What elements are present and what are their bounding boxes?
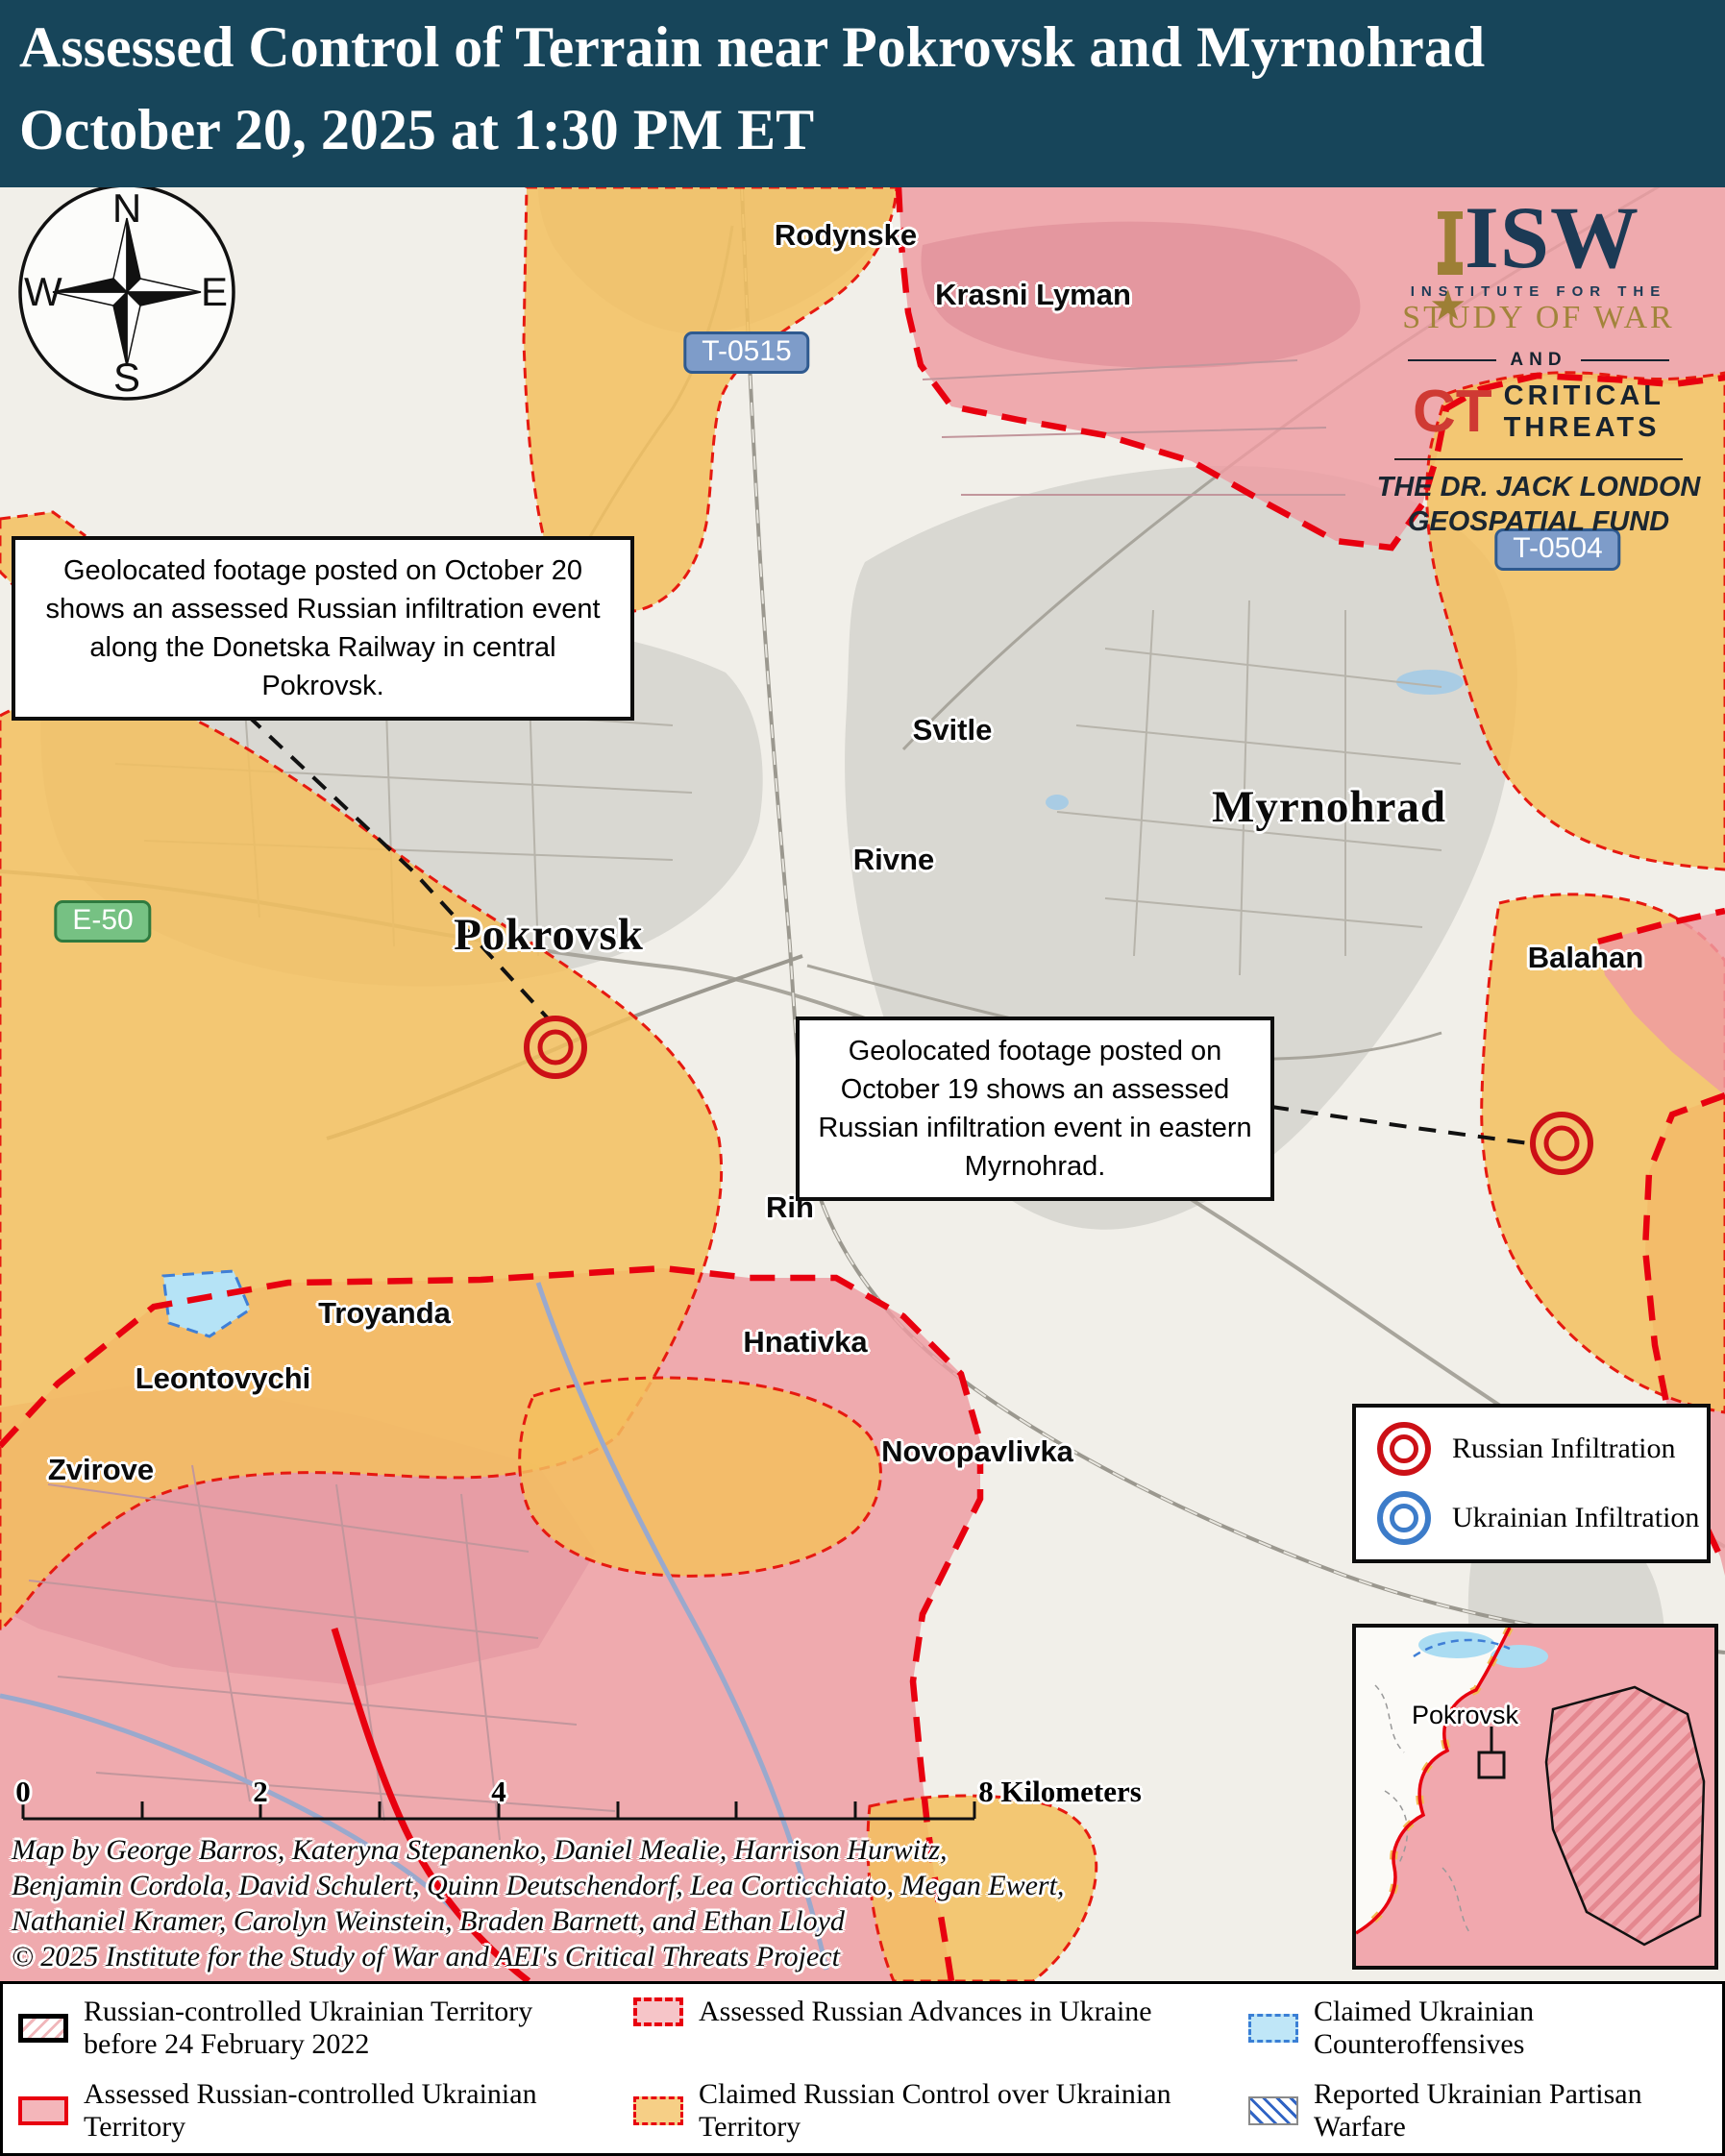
legend-label: Claimed Russian Control over Ukrainian T… — [699, 2078, 1171, 2144]
legend-item-claimed: Claimed Russian Control over Ukrainian T… — [633, 2078, 1171, 2144]
credits-line-4: © 2025 Institute for the Study of War an… — [12, 1939, 1064, 1974]
town-label-balahan: Balahan — [1528, 941, 1644, 975]
fund-line1: THE DR. JACK LONDON — [1366, 470, 1712, 504]
annotation-pokrovsk-infiltration: Geolocated footage posted on October 20 … — [12, 536, 634, 721]
legend-swatch-controlled — [18, 2096, 68, 2125]
town-label-pokrovsk: Pokrovsk — [454, 909, 644, 961]
map-credits: Map by George Barros, Kateryna Stepanenk… — [12, 1832, 1064, 1974]
isw-study-of-war-line: STUDY OF WAR — [1366, 300, 1712, 336]
and-label: AND — [1510, 350, 1566, 371]
annotation-myrnohrad-infiltration: Geolocated footage posted on October 19 … — [796, 1017, 1274, 1201]
legend-label: Reported Ukrainian Partisan Warfare — [1314, 2078, 1681, 2144]
legend-item-pre2022: Russian-controlled Ukrainian Territory b… — [18, 1996, 556, 2061]
town-label-novopavlivka: Novopavlivka — [881, 1434, 1073, 1469]
legend-label: Russian-controlled Ukrainian Territory b… — [84, 1996, 556, 2061]
scale-label-2: 2 — [253, 1775, 268, 1809]
legend-item-advances: Assessed Russian Advances in Ukraine — [633, 1996, 1171, 2028]
legend-swatch-advances — [633, 1997, 683, 2026]
inset-graphics — [1356, 1628, 1714, 1966]
town-label-zvirove: Zvirove — [48, 1453, 154, 1487]
credits-line-3: Nathaniel Kramer, Carolyn Weinstein, Bra… — [12, 1903, 1064, 1939]
town-label-hnativka: Hnativka — [743, 1325, 867, 1360]
infiltration-legend-item: Ukrainian Infiltration — [1377, 1491, 1707, 1545]
map-canvas: N E S W ISW ★ INSTITUTE FOR THE STUDY OF… — [0, 187, 1725, 1981]
legend-swatch-claimed — [633, 2096, 683, 2125]
ct-monogram: CT — [1413, 385, 1492, 439]
fund-line2: GEOSPATIAL FUND — [1366, 504, 1712, 539]
credits-line-1: Map by George Barros, Kateryna Stepanenk… — [12, 1832, 1064, 1868]
town-label-rivne: Rivne — [853, 843, 934, 877]
legend-label: Claimed Ukrainian Counteroffensives — [1314, 1996, 1681, 2061]
and-separator: AND — [1366, 350, 1712, 371]
compass-north-label: N — [112, 187, 141, 232]
compass-south-label: S — [113, 355, 140, 401]
fund-divider — [1394, 458, 1683, 460]
page-title: Assessed Control of Terrain near Pokrovs… — [0, 0, 1725, 88]
ct-wordmark: CRITICAL THREATS — [1504, 380, 1664, 445]
town-label-rodynske: Rodynske — [775, 218, 917, 253]
compass-rose: N E S W — [16, 187, 237, 403]
legend-item-counteroffensives: Claimed Ukrainian Counteroffensives — [1248, 1996, 1681, 2061]
russian-infiltration-icon — [1377, 1422, 1431, 1476]
ct-line1: CRITICAL — [1504, 380, 1664, 412]
isw-map-page: Assessed Control of Terrain near Pokrovs… — [0, 0, 1725, 2156]
isw-logo: ISW ★ — [1366, 193, 1712, 282]
page-subtitle-date: October 20, 2025 at 1:30 PM ET — [0, 88, 1725, 171]
map-legend: Russian-controlled Ukrainian Territory b… — [0, 1981, 1725, 2156]
scale-label-8-kilometers: 8 Kilometers — [978, 1775, 1142, 1809]
branding-block: ISW ★ INSTITUTE FOR THE STUDY OF WAR AND… — [1366, 193, 1712, 539]
road-shield-e-50: E-50 — [54, 900, 151, 943]
credits-line-2: Benjamin Cordola, David Schulert, Quinn … — [12, 1868, 1064, 1903]
locator-inset-map: Pokrovsk — [1352, 1624, 1718, 1970]
ukrainian-infiltration-icon — [1377, 1491, 1431, 1545]
legend-label: Assessed Russian-controlled Ukrainian Te… — [84, 2078, 556, 2144]
legend-label: Assessed Russian Advances in Ukraine — [699, 1996, 1152, 2028]
road-shield-t-0515: T-0515 — [683, 331, 809, 374]
ct-line2: THREATS — [1504, 412, 1664, 444]
inset-pokrovsk-label: Pokrovsk — [1412, 1701, 1518, 1730]
critical-threats-logo: CT CRITICAL THREATS — [1366, 380, 1712, 445]
legend-item-controlled: Assessed Russian-controlled Ukrainian Te… — [18, 2078, 556, 2144]
scale-label-4: 4 — [491, 1775, 506, 1809]
town-label-troyanda: Troyanda — [318, 1296, 451, 1331]
legend-swatch-partisan — [1248, 2096, 1298, 2125]
geospatial-fund-label: THE DR. JACK LONDON GEOSPATIAL FUND — [1366, 470, 1712, 540]
town-label-svitle: Svitle — [913, 713, 993, 747]
infiltration-legend-item: Russian Infiltration — [1377, 1422, 1707, 1476]
header-bar: Assessed Control of Terrain near Pokrovs… — [0, 0, 1725, 187]
town-label-krasni-lyman: Krasni Lyman — [935, 278, 1131, 312]
legend-swatch-pre2022 — [18, 2014, 68, 2043]
isw-star-icon: ★ — [1429, 285, 1466, 328]
compass-east-label: E — [201, 269, 228, 315]
legend-swatch-counteroffensives — [1248, 2014, 1298, 2043]
legend-item-partisan: Reported Ukrainian Partisan Warfare — [1248, 2078, 1681, 2144]
infiltration-legend: Russian InfiltrationUkrainian Infiltrati… — [1352, 1404, 1711, 1563]
isw-acronym: ISW — [1465, 188, 1639, 286]
infiltration-legend-label: Ukrainian Infiltration — [1452, 1502, 1699, 1534]
compass-west-label: W — [24, 269, 62, 315]
town-label-myrnohrad: Myrnohrad — [1212, 781, 1446, 833]
town-label-leontovychi: Leontovychi — [136, 1361, 311, 1396]
rule-left — [1408, 359, 1496, 361]
rule-right — [1581, 359, 1669, 361]
infiltration-legend-label: Russian Infiltration — [1452, 1433, 1675, 1465]
scale-label-0: 0 — [15, 1775, 31, 1809]
isw-column-icon — [1438, 211, 1463, 275]
